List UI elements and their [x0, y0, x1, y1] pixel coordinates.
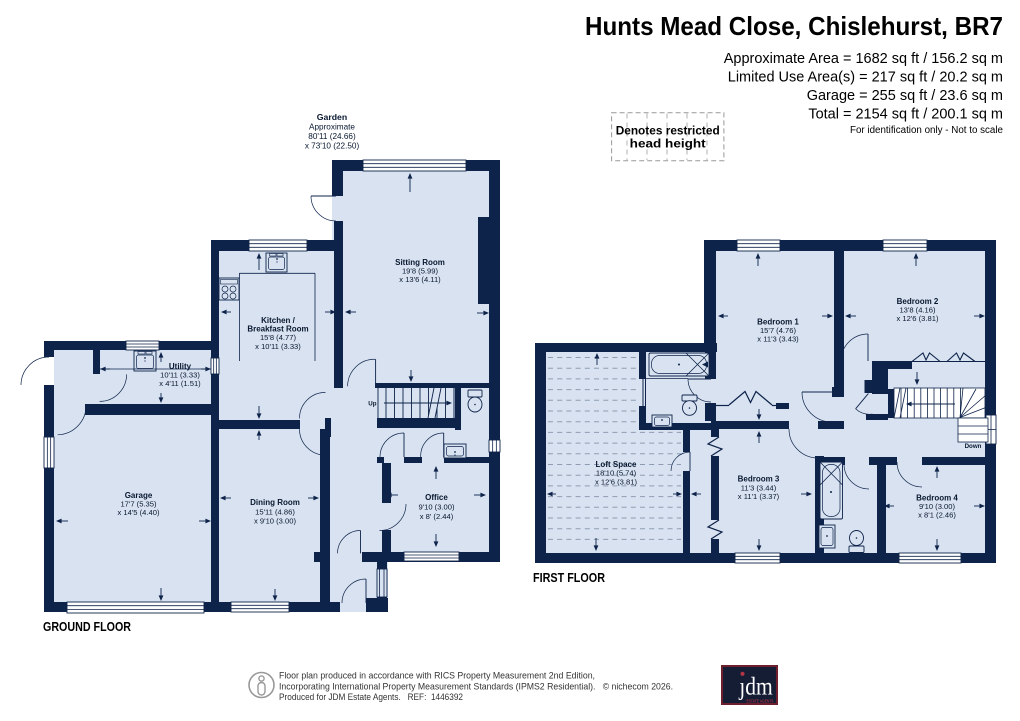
- svg-text:Hunts Mead Close, Chislehurst,: Hunts Mead Close, Chislehurst, BR7: [585, 11, 1003, 41]
- svg-text:Up: Up: [368, 401, 376, 408]
- svg-text:Office: Office: [425, 493, 448, 502]
- svg-text:Limited Use Area(s) = 217 sq f: Limited Use Area(s) = 217 sq ft / 20.2 s…: [728, 70, 1003, 86]
- svg-text:Dining Room: Dining Room: [250, 498, 300, 507]
- svg-text:15'11 (4.86): 15'11 (4.86): [255, 507, 295, 516]
- svg-text:x 11'3 (3.43): x 11'3 (3.43): [757, 335, 799, 344]
- svg-text:x 4'11 (1.51): x 4'11 (1.51): [159, 379, 201, 388]
- svg-text:ESTATE AGENTS: ESTATE AGENTS: [747, 698, 774, 703]
- svg-text:x 12'6 (3.81): x 12'6 (3.81): [595, 477, 637, 486]
- svg-text:x 9'10 (3.00): x 9'10 (3.00): [254, 517, 296, 526]
- svg-text:x 11'1 (3.37): x 11'1 (3.37): [738, 492, 780, 501]
- svg-text:x 12'6 (3.81): x 12'6 (3.81): [897, 314, 939, 323]
- svg-text:80'11 (24.66): 80'11 (24.66): [308, 132, 356, 141]
- svg-text:FIRST FLOOR: FIRST FLOOR: [533, 571, 605, 585]
- svg-text:Incorporating International Pr: Incorporating International Property Mea…: [279, 681, 673, 691]
- svg-text:x 8' (2.44): x 8' (2.44): [420, 512, 454, 521]
- svg-text:Total = 2154 sq ft / 200.1 sq: Total = 2154 sq ft / 200.1 sq m: [808, 107, 1003, 123]
- svg-text:Approximate: Approximate: [309, 123, 355, 132]
- svg-text:head height: head height: [630, 137, 706, 151]
- svg-text:GROUND FLOOR: GROUND FLOOR: [43, 620, 131, 634]
- svg-text:Down: Down: [965, 443, 982, 450]
- svg-text:x 13'6 (4.11): x 13'6 (4.11): [399, 275, 441, 284]
- svg-text:Garden: Garden: [317, 112, 347, 122]
- svg-text:Denotes restricted: Denotes restricted: [616, 124, 720, 138]
- svg-text:x 10'11 (3.33): x 10'11 (3.33): [255, 342, 301, 351]
- svg-text:For identification only - Not: For identification only - Not to scale: [850, 125, 1003, 136]
- svg-text:9'10 (3.00): 9'10 (3.00): [418, 503, 455, 512]
- svg-text:Produced for JDM Estate Agents: Produced for JDM Estate Agents. REF: 144…: [279, 692, 463, 702]
- svg-text:18'10 (5.74): 18'10 (5.74): [596, 469, 637, 478]
- svg-text:ȷdm: ȷdm: [738, 674, 773, 701]
- svg-text:Garage = 255 sq ft / 23.6 sq m: Garage = 255 sq ft / 23.6 sq m: [807, 88, 1003, 104]
- svg-text:Approximate Area = 1682 sq ft: Approximate Area = 1682 sq ft / 156.2 sq…: [724, 51, 1003, 67]
- svg-text:Loft Space: Loft Space: [596, 460, 637, 469]
- svg-text:x 8'1 (2.46): x 8'1 (2.46): [918, 511, 956, 520]
- svg-text:Floor plan produced in accorda: Floor plan produced in accordance with R…: [279, 671, 595, 681]
- svg-text:x 14'5 (4.40): x 14'5 (4.40): [118, 508, 160, 517]
- svg-text:x 73'10 (22.50): x 73'10 (22.50): [305, 142, 360, 151]
